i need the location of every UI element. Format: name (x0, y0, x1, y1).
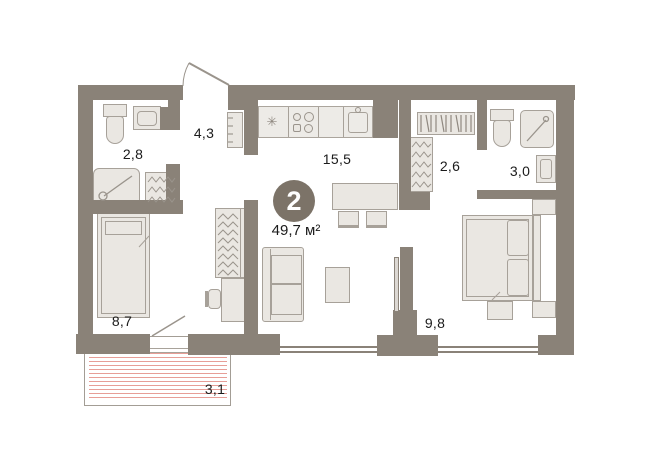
room-label-balcony: 3,1 (200, 381, 230, 397)
room-label-bedroom-right: 9,8 (420, 315, 450, 331)
room-label-hallway: 4,3 (189, 125, 219, 141)
shelf-zigzag-bath (148, 177, 175, 202)
total-area-label: 49,7 м² (261, 222, 331, 239)
room-label-bedroom-left: 8,7 (107, 313, 137, 329)
room-label-wardrobe: 2,6 (435, 158, 465, 174)
hanger-rail-icon (421, 115, 471, 132)
shower-icon (99, 176, 132, 200)
room-label-bathroom-right: 3,0 (505, 163, 535, 179)
floor-plan-canvas: ✳ (0, 0, 654, 470)
balcony-door-icon (152, 316, 185, 336)
hall-cabinet-ticks (228, 118, 233, 142)
blanket-fold-2-icon (492, 292, 500, 300)
room-label-bathroom-top-left: 2,8 (118, 146, 148, 162)
blanket-fold-icon (139, 236, 149, 247)
room-label-kitchen-living: 15,5 (317, 151, 357, 167)
shower-2-icon (527, 117, 549, 142)
room-count-number: 2 (286, 186, 301, 216)
room-count-badge: 2 (273, 180, 315, 222)
wardrobe26-zigzag (412, 142, 431, 187)
wardrobe-zigzag (218, 214, 238, 275)
entrance-door-icon (183, 63, 229, 86)
